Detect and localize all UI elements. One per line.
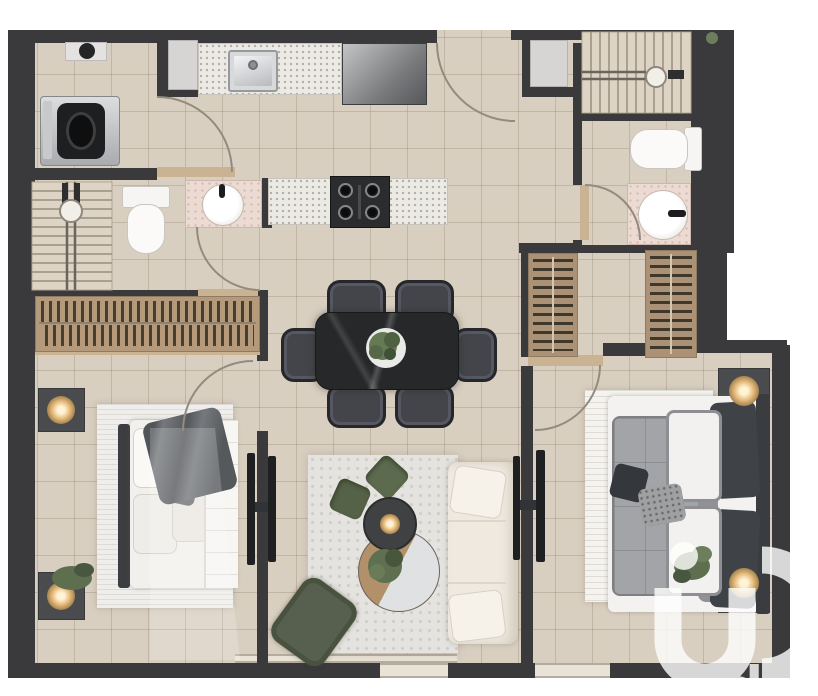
door-arcs xyxy=(157,43,640,431)
plant-dining-centerpiece xyxy=(369,332,400,360)
watermark-text: iad xyxy=(668,652,763,696)
plant-coffee-table xyxy=(368,549,403,583)
entry-door-swing xyxy=(437,43,515,121)
bedroom-right-door-swing xyxy=(535,365,600,430)
plant-bedroom-left xyxy=(52,563,94,590)
newel-post-icon xyxy=(60,200,82,222)
plant-stair-right xyxy=(706,32,718,44)
floor-plan: iad xyxy=(0,0,818,696)
bath-left-door-swing xyxy=(197,227,260,290)
bath-right-door-swing xyxy=(585,185,640,240)
staircase-right xyxy=(582,32,691,113)
staircase-left xyxy=(32,182,112,290)
watermark-logo: iad xyxy=(668,542,818,696)
detail-overlay: iad xyxy=(0,0,818,696)
newel-post-icon xyxy=(646,67,666,87)
bedroom-left-door-swing xyxy=(183,361,253,431)
laundry-door-swing xyxy=(157,97,232,172)
